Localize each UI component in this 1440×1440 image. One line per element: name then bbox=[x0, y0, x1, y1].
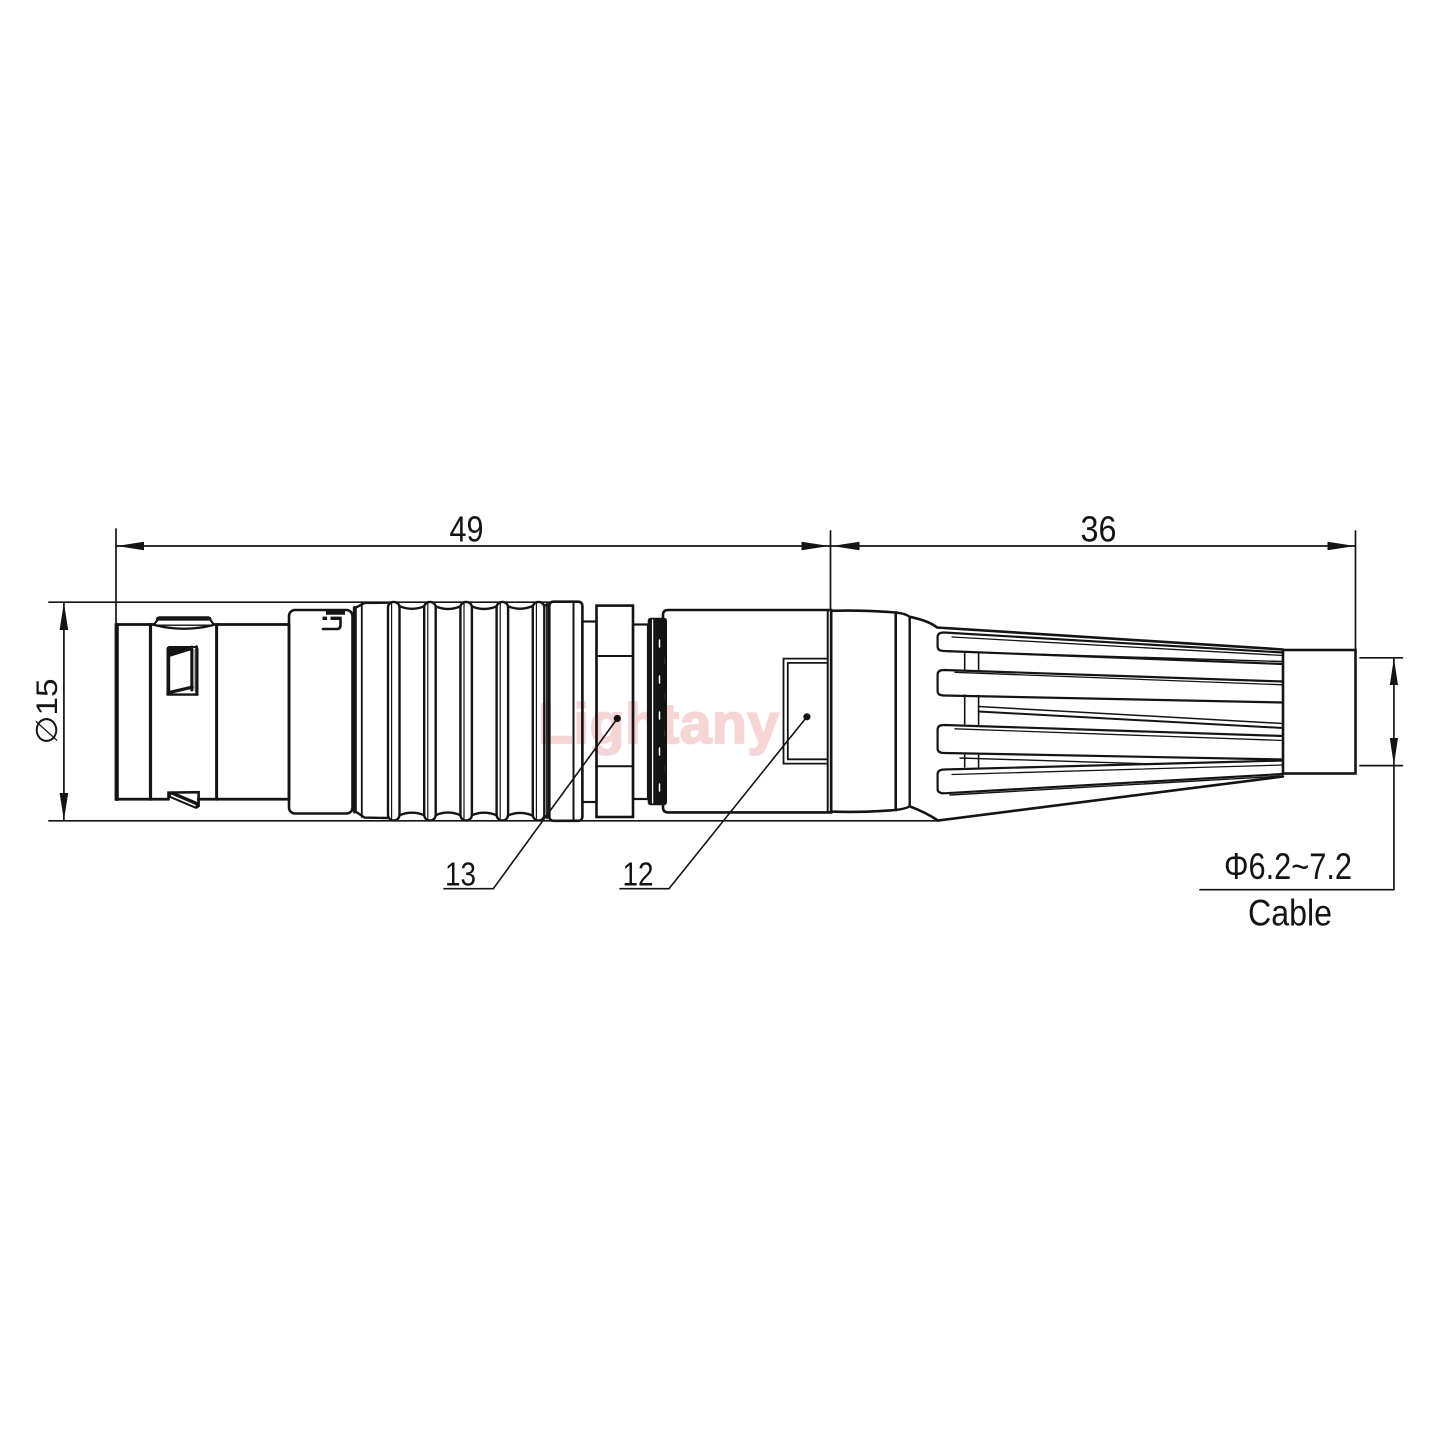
svg-text:49: 49 bbox=[450, 509, 484, 550]
svg-text:Φ6.2~7.2: Φ6.2~7.2 bbox=[1224, 846, 1352, 887]
svg-text:12: 12 bbox=[623, 856, 654, 893]
svg-text:∅15: ∅15 bbox=[31, 679, 64, 745]
svg-text:13: 13 bbox=[445, 856, 476, 893]
svg-text:Cable: Cable bbox=[1248, 893, 1332, 934]
svg-text:36: 36 bbox=[1081, 509, 1117, 550]
